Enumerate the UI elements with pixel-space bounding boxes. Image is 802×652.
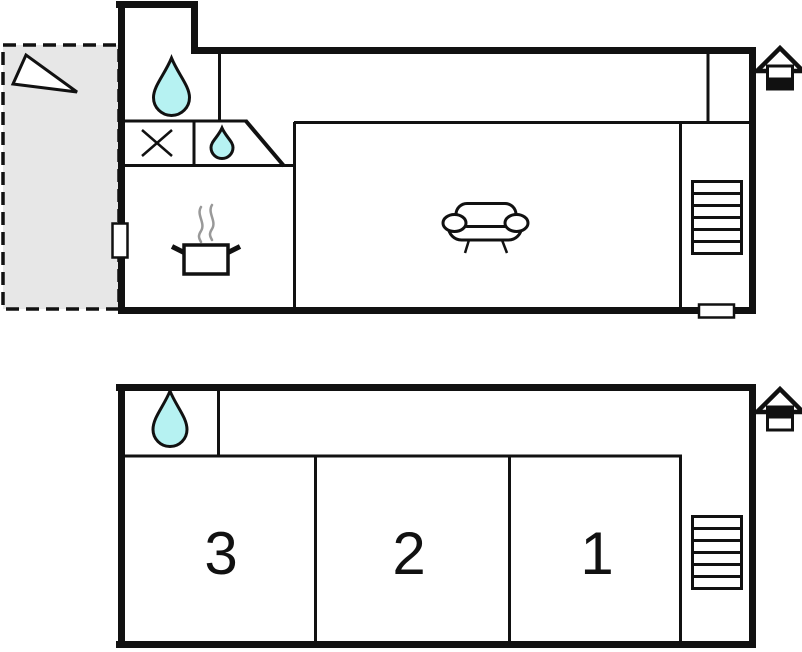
wall	[118, 384, 125, 648]
ground-floor-plan	[3, 1, 802, 318]
door-left-icon	[113, 224, 128, 258]
sofa-icon	[443, 204, 528, 254]
stairs-icon-upper	[693, 517, 742, 589]
cooking-pot-icon	[172, 205, 240, 274]
sofa-leg	[465, 240, 469, 253]
upper-floor-walls	[116, 384, 756, 648]
wall	[116, 384, 756, 391]
floor-plan-page: 3 2 1	[0, 0, 802, 652]
water-drop-icon	[154, 58, 190, 116]
sofa-leg	[502, 240, 507, 253]
pot-handle	[172, 247, 184, 253]
wall	[116, 641, 756, 648]
steam-line	[210, 205, 213, 240]
stairs-icon	[693, 182, 742, 254]
floor-plan-canvas: 3 2 1	[0, 0, 802, 652]
wall	[191, 47, 756, 54]
wall	[749, 47, 756, 314]
wall	[116, 1, 198, 8]
door-bottom-icon	[699, 305, 734, 318]
hob-cross-icon	[142, 130, 172, 156]
sofa-armrest	[443, 215, 466, 232]
house-level-indicator-ground	[757, 48, 802, 89]
wall	[118, 1, 125, 314]
partition-diagonal	[246, 121, 285, 167]
pot-body	[184, 245, 228, 274]
sofa-armrest	[505, 215, 528, 232]
wall	[191, 1, 198, 51]
wall	[749, 384, 756, 648]
steam-line	[199, 207, 202, 242]
pot-handle	[228, 247, 240, 253]
room-label-2: 2	[392, 520, 425, 587]
room-label-1: 1	[580, 520, 613, 587]
room-label-3: 3	[204, 520, 237, 587]
house-upper-level-filled	[766, 407, 794, 419]
house-level-indicator-upper	[757, 389, 802, 430]
house-lower-level-filled	[766, 78, 794, 90]
upper-floor-plan: 3 2 1	[116, 384, 802, 648]
wall	[118, 307, 756, 314]
water-drop-icon-upper	[153, 391, 187, 447]
upper-floor-partitions	[118, 390, 682, 642]
water-drop-small-icon	[211, 128, 233, 159]
